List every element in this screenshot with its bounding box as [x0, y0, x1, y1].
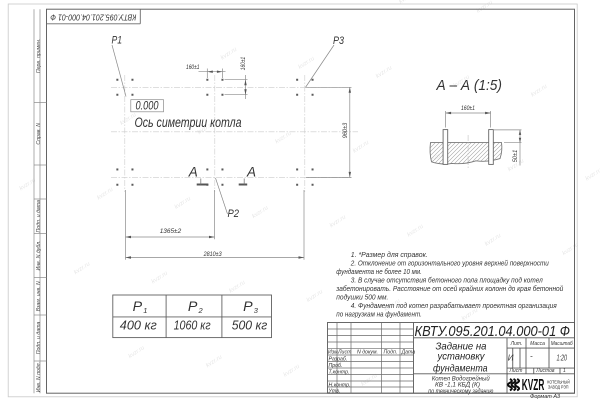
svg-text:3: 3: [254, 306, 259, 315]
svg-text:Перв. примен.: Перв. примен.: [36, 39, 42, 73]
svg-text:N докум.: N докум.: [357, 350, 378, 356]
svg-text:kvzr.ru: kvzr.ru: [73, 261, 92, 276]
svg-text:Инв. N подл.: Инв. N подл.: [36, 362, 42, 392]
svg-text:500 кг: 500 кг: [232, 318, 268, 333]
svg-text:Масса: Масса: [530, 341, 545, 347]
svg-text:Масштаб: Масштаб: [551, 341, 573, 347]
svg-text:КВ -1,1 КБД (К): КВ -1,1 КБД (К): [435, 382, 480, 388]
svg-text:kvzr.ru: kvzr.ru: [19, 177, 38, 192]
svg-text:160±1: 160±1: [461, 105, 475, 112]
svg-text:kvzr.ru: kvzr.ru: [228, 279, 247, 294]
svg-text:Р3: Р3: [333, 35, 345, 47]
svg-text:Подп.: Подп.: [384, 350, 398, 356]
svg-text:Формат А3: Формат А3: [530, 394, 561, 400]
svg-text:kvzr.ru: kvzr.ru: [174, 196, 193, 211]
svg-text:kvzr.ru: kvzr.ru: [274, 130, 293, 145]
svg-text:фундамента: фундамента: [433, 363, 488, 375]
svg-text:2: 2: [198, 306, 204, 315]
svg-text:Разраб.: Разраб.: [329, 356, 348, 362]
svg-text:KVZR: KVZR: [522, 377, 545, 394]
svg-text:Листов: Листов: [535, 368, 555, 374]
svg-text:Р: Р: [243, 299, 253, 314]
svg-text:А – А (1:5): А – А (1:5): [436, 78, 502, 94]
svg-text:kvzr.ru: kvzr.ru: [298, 56, 317, 71]
svg-text:0.000: 0.000: [136, 99, 159, 113]
svg-text:Ось симетрии котла: Ось симетрии котла: [135, 115, 242, 130]
svg-text:подушки 500 мм.: подушки 500 мм.: [336, 294, 388, 302]
svg-text:3. В случае отсутствия бетонно: 3. В случае отсутствия бетонного пола пл…: [351, 277, 543, 285]
svg-text:160±1: 160±1: [186, 64, 200, 71]
svg-text:kvzr.ru: kvzr.ru: [585, 167, 600, 182]
svg-text:kvzr.ru: kvzr.ru: [375, 65, 394, 80]
svg-text:КОТЕЛЬНЫЙ: КОТЕЛЬНЫЙ: [547, 377, 570, 384]
svg-text:2810±3: 2810±3: [203, 251, 222, 258]
svg-text:400 кг: 400 кг: [120, 318, 158, 333]
svg-text:kvzr.ru: kvzr.ru: [151, 270, 170, 285]
svg-text:kvzr.ru: kvzr.ru: [96, 186, 115, 201]
svg-text:1: 1: [143, 306, 147, 315]
svg-text:1060 кг: 1060 кг: [174, 318, 211, 333]
svg-text:1365±2: 1365±2: [160, 228, 182, 235]
svg-text:kvzr.ru: kvzr.ru: [398, 0, 417, 5]
svg-text:Лист: Лист: [337, 350, 352, 356]
svg-text:Подп. и дата: Подп. и дата: [36, 200, 42, 233]
svg-text:Проб.: Проб.: [329, 363, 343, 369]
svg-text:kvzr.ru: kvzr.ru: [476, 0, 495, 15]
svg-text:4. Фундамент под котел разраба: 4. Фундамент под котел разрабатывает про…: [351, 302, 557, 310]
svg-text:kvzr.ru: kvzr.ru: [329, 214, 348, 229]
svg-text:kvzr.ru: kvzr.ru: [251, 205, 270, 220]
svg-text:Справ. N: Справ. N: [36, 123, 42, 145]
svg-text:по техническому заданию: по техническому заданию: [428, 389, 493, 395]
svg-text:kvzr.ru: kvzr.ru: [484, 233, 503, 248]
svg-text:kvzr.ru: kvzr.ru: [306, 289, 325, 304]
svg-text:Котел Водогрейный: Котел Водогрейный: [432, 375, 491, 382]
svg-text:kvzr.ru: kvzr.ru: [283, 363, 302, 378]
svg-text:КВТУ.095.201.04.000-01 Ф: КВТУ.095.201.04.000-01 Ф: [415, 323, 571, 340]
svg-text:А: А: [246, 164, 256, 179]
svg-text:Подп. и дата: Подп. и дата: [36, 322, 42, 355]
svg-text:50±1: 50±1: [512, 150, 519, 163]
svg-text:Р: Р: [188, 299, 198, 314]
svg-text:Лист: Лист: [509, 368, 523, 374]
svg-text:kvzr.ru: kvzr.ru: [406, 223, 425, 238]
svg-text:960±3: 960±3: [342, 123, 349, 139]
svg-text:А: А: [188, 164, 198, 179]
svg-text:160±1: 160±1: [240, 57, 247, 71]
svg-text:Инв. N дубл.: Инв. N дубл.: [36, 240, 42, 270]
svg-text:забетонировать. Расстояние от: забетонировать. Расстояние от осей крайн…: [335, 285, 563, 293]
svg-text:по нагрузкам на фундамент.: по нагрузкам на фундамент.: [336, 310, 422, 318]
svg-text:Утв.: Утв.: [329, 388, 341, 394]
svg-text:kvzr.ru: kvzr.ru: [530, 83, 549, 98]
svg-text:kvzr.ru: kvzr.ru: [128, 345, 147, 360]
svg-text:фундамента не более 10 мм.: фундамента не более 10 мм.: [336, 268, 422, 276]
svg-text:-: -: [530, 352, 533, 361]
svg-text:2. Отклонение от горизонтально: 2. Отклонение от горизонтального уровня …: [350, 260, 549, 268]
svg-text:Дата: Дата: [401, 350, 416, 356]
svg-text:И: И: [508, 354, 514, 363]
svg-text:Т.контр.: Т.контр.: [329, 370, 350, 376]
svg-text:kvzr.ru: kvzr.ru: [220, 46, 239, 61]
svg-text:ЗАВОД РЭП: ЗАВОД РЭП: [548, 384, 569, 389]
svg-text:kvzr.ru: kvzr.ru: [352, 139, 371, 154]
svg-text:КВТУ.095.201.04.000-01 Ф: КВТУ.095.201.04.000-01 Ф: [50, 12, 136, 22]
svg-text:kvzr.ru: kvzr.ru: [205, 354, 224, 369]
svg-text:1. *Размер для справок.: 1. *Размер для справок.: [351, 251, 428, 259]
svg-text:Р2: Р2: [228, 208, 240, 220]
svg-text:Р1: Р1: [112, 35, 123, 47]
svg-text:1:20: 1:20: [557, 354, 568, 363]
svg-text:Взам. инв. N: Взам. инв. N: [36, 281, 42, 311]
svg-text:1: 1: [563, 368, 566, 374]
svg-text:Р: Р: [133, 299, 143, 314]
svg-text:установку: установку: [437, 351, 486, 363]
svg-text:Лит.: Лит.: [510, 341, 523, 347]
